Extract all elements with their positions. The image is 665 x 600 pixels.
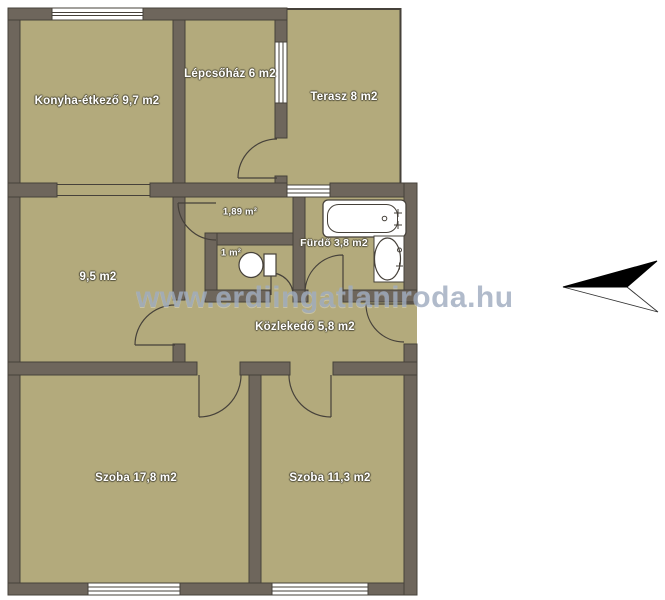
floorplan-drawing [0,0,665,600]
bathtub-icon [323,200,406,237]
room-label-felszoba: 9,5 m2 [79,271,116,283]
room-label-wc: 1 m² [221,248,241,259]
room-label-furdo: Fürdő 3,8 m2 [300,237,368,249]
room-label-szoba-kicsi: Szoba 11,3 m2 [289,472,370,484]
room-label-kozlekedo: Közlekedő 5,8 m2 [255,321,355,333]
room-label-konyha-etkezo: Konyha-étkező 9,7 m2 [35,95,160,107]
floorplan-image: Konyha-étkező 9,7 m2 Lépcsőház 6 m2 Tera… [0,0,665,600]
north-arrow-icon [563,261,658,312]
room-label-eloter: 1,89 m² [223,207,257,218]
toilet-icon [239,253,276,278]
room-label-terasz: Terasz 8 m2 [310,91,377,103]
room-label-szoba-nagy: Szoba 17,8 m2 [95,472,177,484]
room-label-lepcsohaz: Lépcsőház 6 m2 [184,68,276,80]
sink-icon [374,236,404,282]
